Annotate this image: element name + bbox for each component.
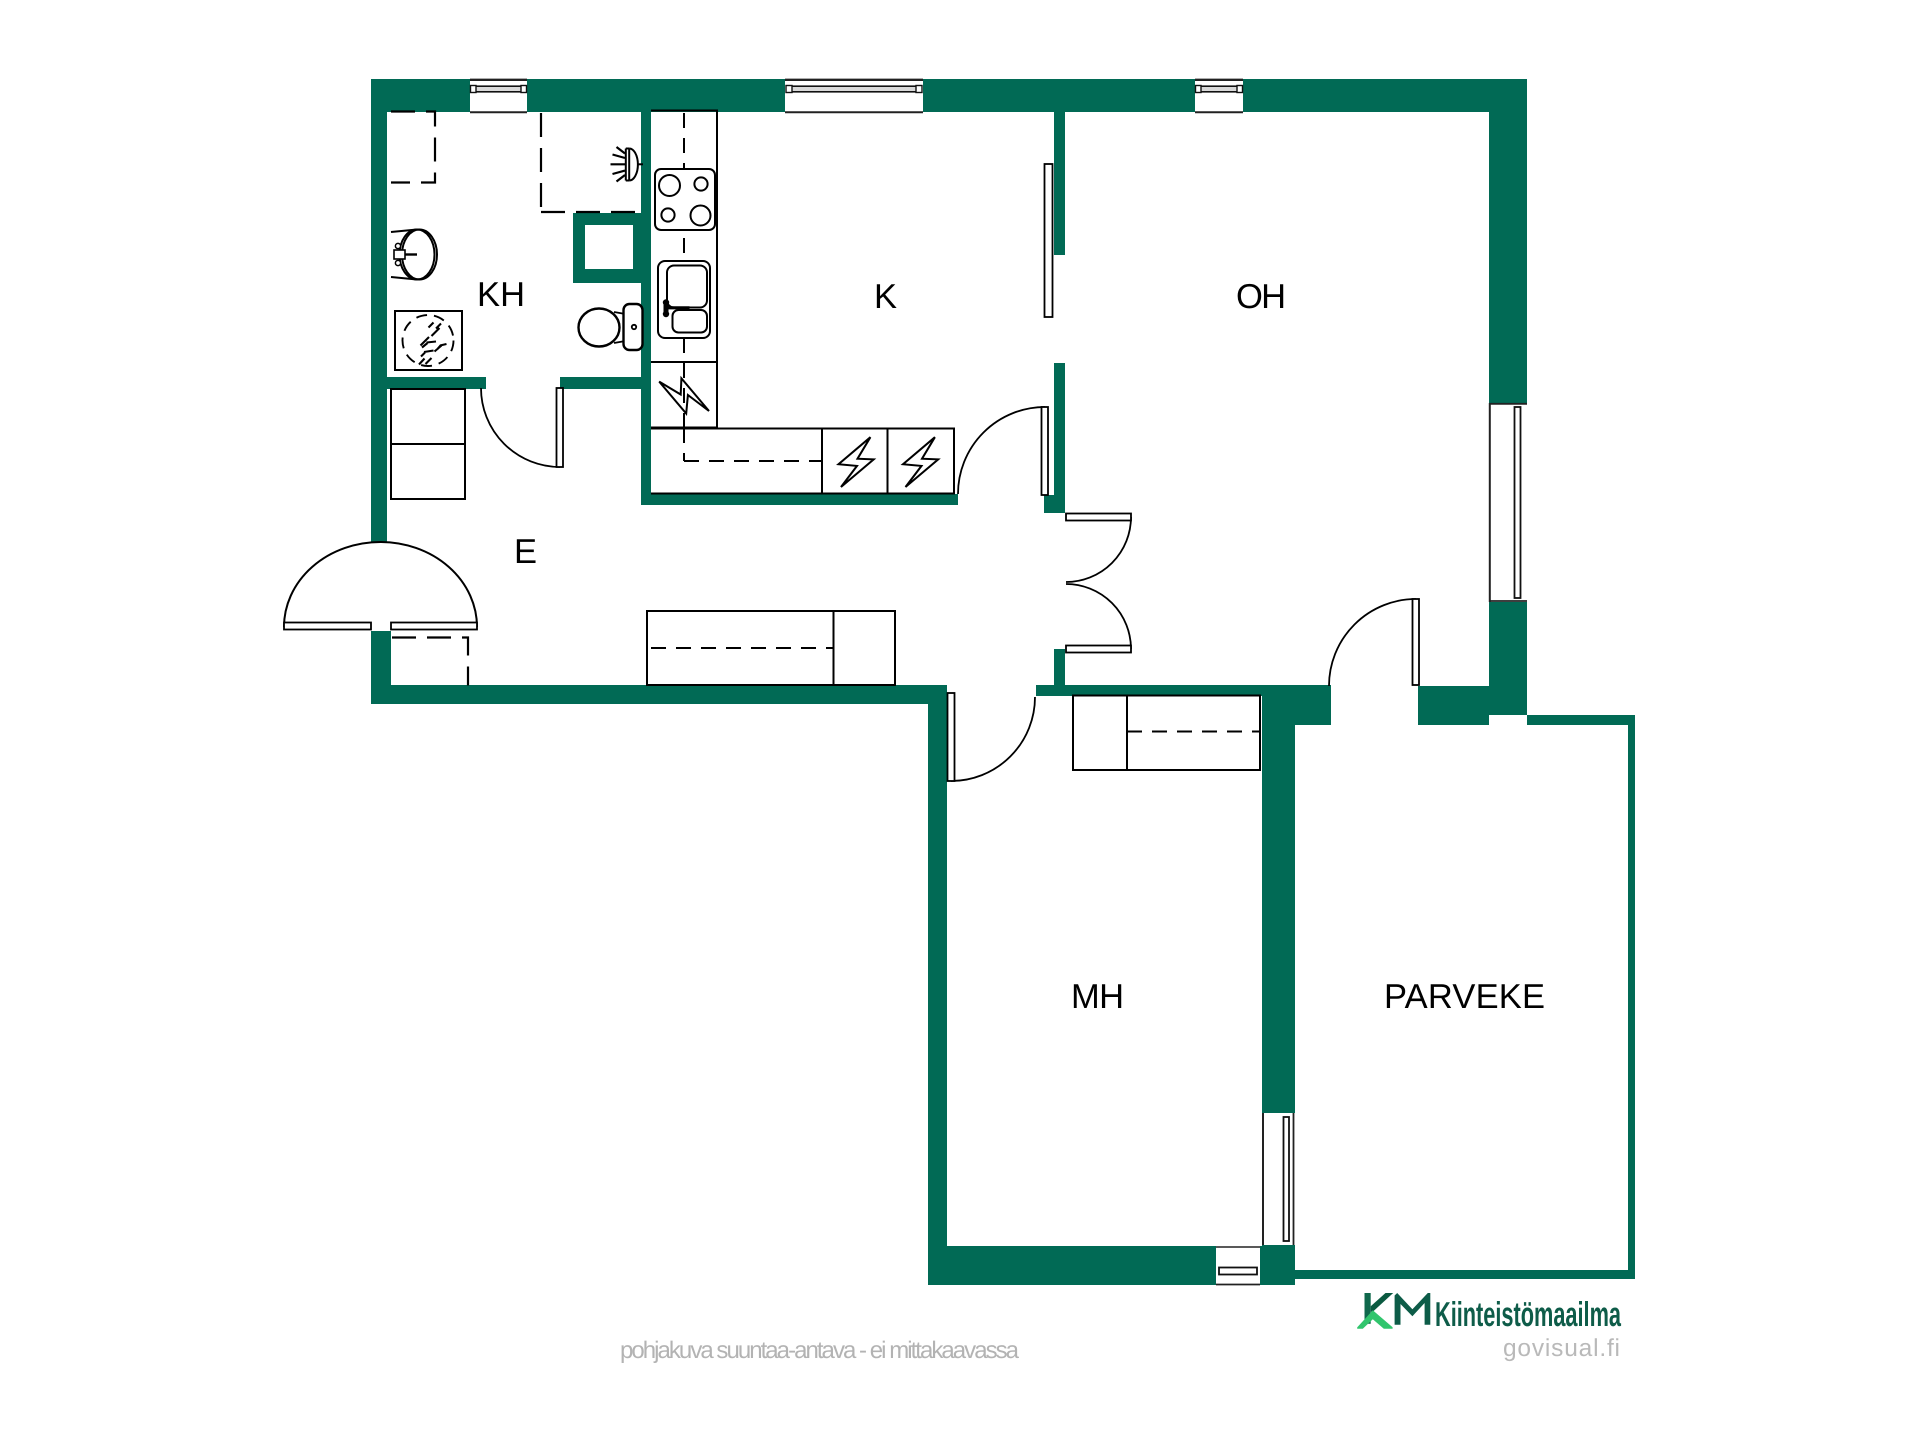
svg-text:PARVEKE: PARVEKE: [1384, 978, 1545, 1016]
svg-text:MH: MH: [1071, 978, 1124, 1016]
svg-text:E: E: [514, 533, 537, 571]
svg-text:KH: KH: [477, 276, 525, 314]
svg-text:govisual.fi: govisual.fi: [1503, 1335, 1620, 1362]
svg-text:Kiinteistömaailma: Kiinteistömaailma: [1435, 1296, 1622, 1334]
svg-text:OH: OH: [1236, 278, 1286, 316]
svg-text:K: K: [874, 278, 897, 316]
svg-text:pohjakuva suuntaa-antava - ei: pohjakuva suuntaa-antava - ei mittakaava…: [620, 1337, 1020, 1364]
